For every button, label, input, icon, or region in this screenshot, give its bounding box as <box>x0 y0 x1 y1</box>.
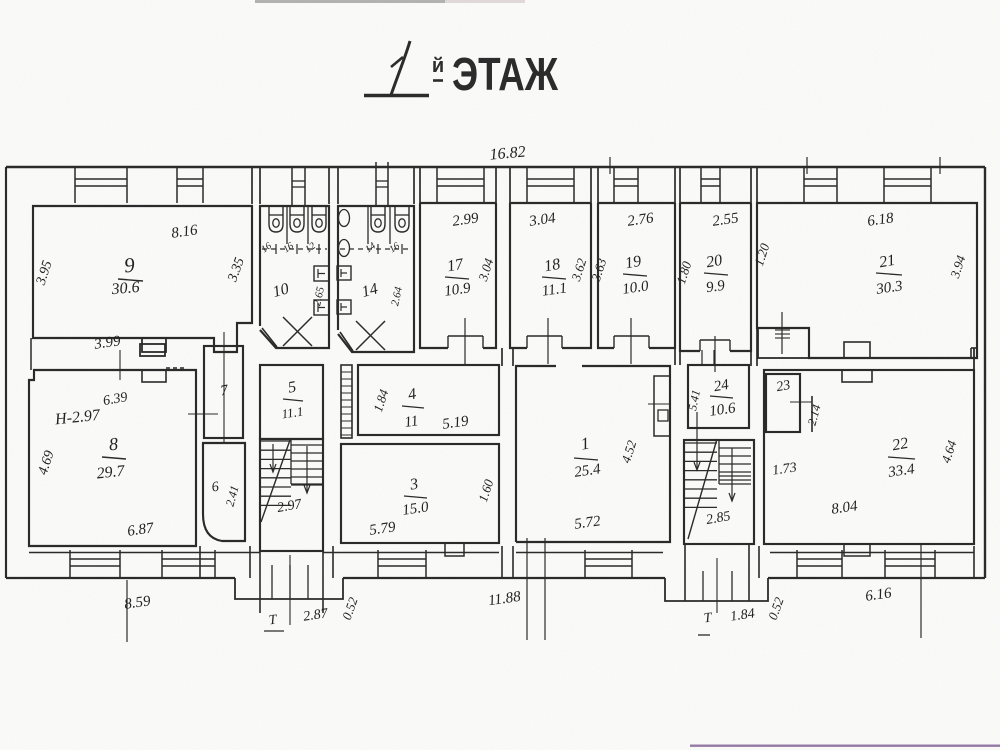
svg-text:21: 21 <box>878 252 897 272</box>
svg-text:23: 23 <box>775 378 791 395</box>
svg-text:ЭТАЖ: ЭТАЖ <box>452 48 558 100</box>
svg-text:30.6: 30.6 <box>110 279 140 298</box>
svg-text:11: 11 <box>403 413 419 431</box>
svg-text:18: 18 <box>543 256 562 276</box>
svg-text:8: 8 <box>108 434 119 455</box>
svg-text:29.7: 29.7 <box>96 463 127 483</box>
svg-text:9.9: 9.9 <box>705 278 726 297</box>
svg-text:й: й <box>432 55 444 77</box>
svg-text:20: 20 <box>705 252 724 272</box>
svg-text:16.82: 16.82 <box>489 143 526 163</box>
svg-text:19: 19 <box>624 253 643 273</box>
svg-text:22: 22 <box>891 435 910 455</box>
svg-text:11.1: 11.1 <box>281 404 305 422</box>
